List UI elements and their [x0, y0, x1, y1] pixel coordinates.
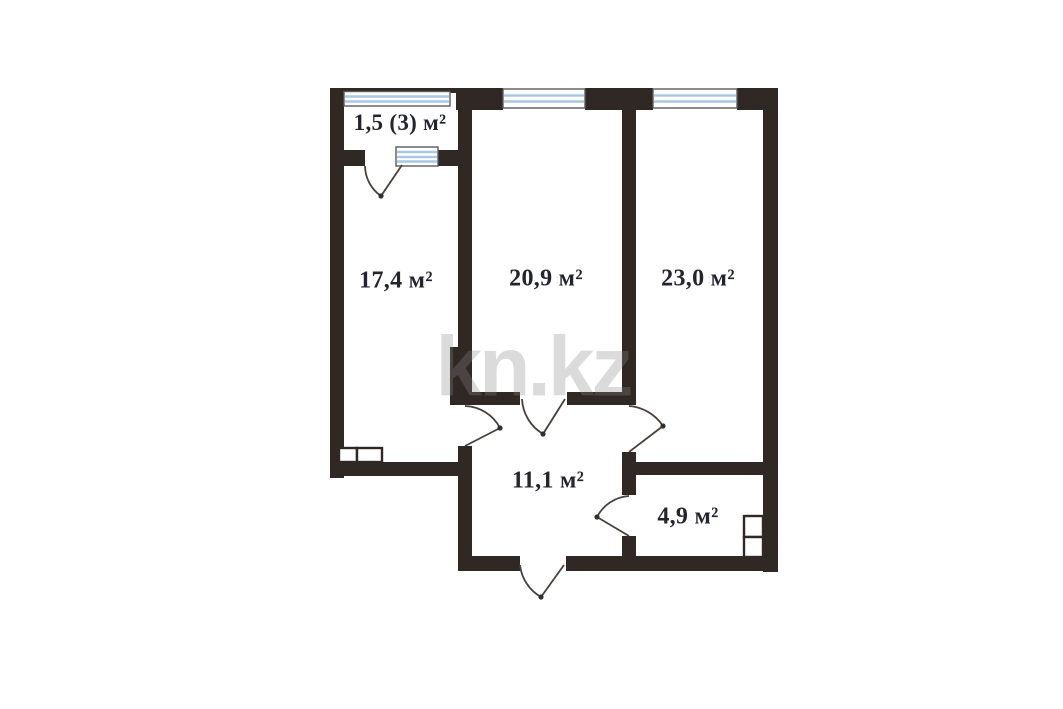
- wall-bottom-left: [458, 556, 520, 571]
- vent-shaft-bathroom: [744, 516, 763, 557]
- door-room-23-0: [629, 406, 666, 452]
- bathroom-area-label: 4,9 м²: [657, 504, 718, 531]
- room-17-4-area-label: 17,4 м²: [359, 268, 433, 295]
- wall-balcony-stub-left: [344, 150, 365, 166]
- page: { "page": { "background_color": "#ffffff…: [0, 0, 1063, 709]
- wall-bottom-right: [566, 556, 778, 571]
- floor-plan: 1,5 (3) м² 17,4 м² 20,9 м² 23,0 м² 11,1 …: [0, 0, 1063, 709]
- wall-hall-top-right: [567, 392, 622, 405]
- doors: [365, 165, 666, 600]
- wall-bathroom-top: [628, 462, 778, 475]
- room-20-9-area-label: 20,9 м²: [509, 266, 583, 293]
- window-balcony-top: [344, 92, 450, 107]
- wall-hall-top-left: [458, 392, 520, 405]
- wall-left-outer: [330, 88, 344, 478]
- door-bathroom: [594, 496, 629, 536]
- room-23-0-area-label: 23,0 м²: [661, 266, 735, 293]
- wall-hall-left: [458, 446, 472, 571]
- balcony-area-label: 1,5 (3) м²: [354, 110, 447, 136]
- floor-plan-drawing: [0, 0, 1063, 709]
- door-entrance: [520, 565, 564, 600]
- window-balcony-inner: [396, 147, 438, 166]
- wall-right-outer: [763, 88, 778, 572]
- wall-bottom-17: [330, 462, 472, 476]
- door-balcony: [365, 165, 402, 199]
- vent-shaft-room-17: [339, 448, 382, 462]
- wall-partition-17-20-step: [450, 347, 458, 405]
- window-room-23-0: [653, 89, 737, 108]
- window-room-20-9: [503, 89, 585, 108]
- door-room-20-9: [522, 399, 565, 437]
- door-room-17-4: [465, 406, 503, 446]
- wall-partition-20-23: [622, 110, 636, 405]
- hallway-area-label: 11,1 м²: [512, 468, 584, 495]
- wall-top-pier-middle: [585, 88, 653, 110]
- wall-partition-17-20: [458, 88, 472, 392]
